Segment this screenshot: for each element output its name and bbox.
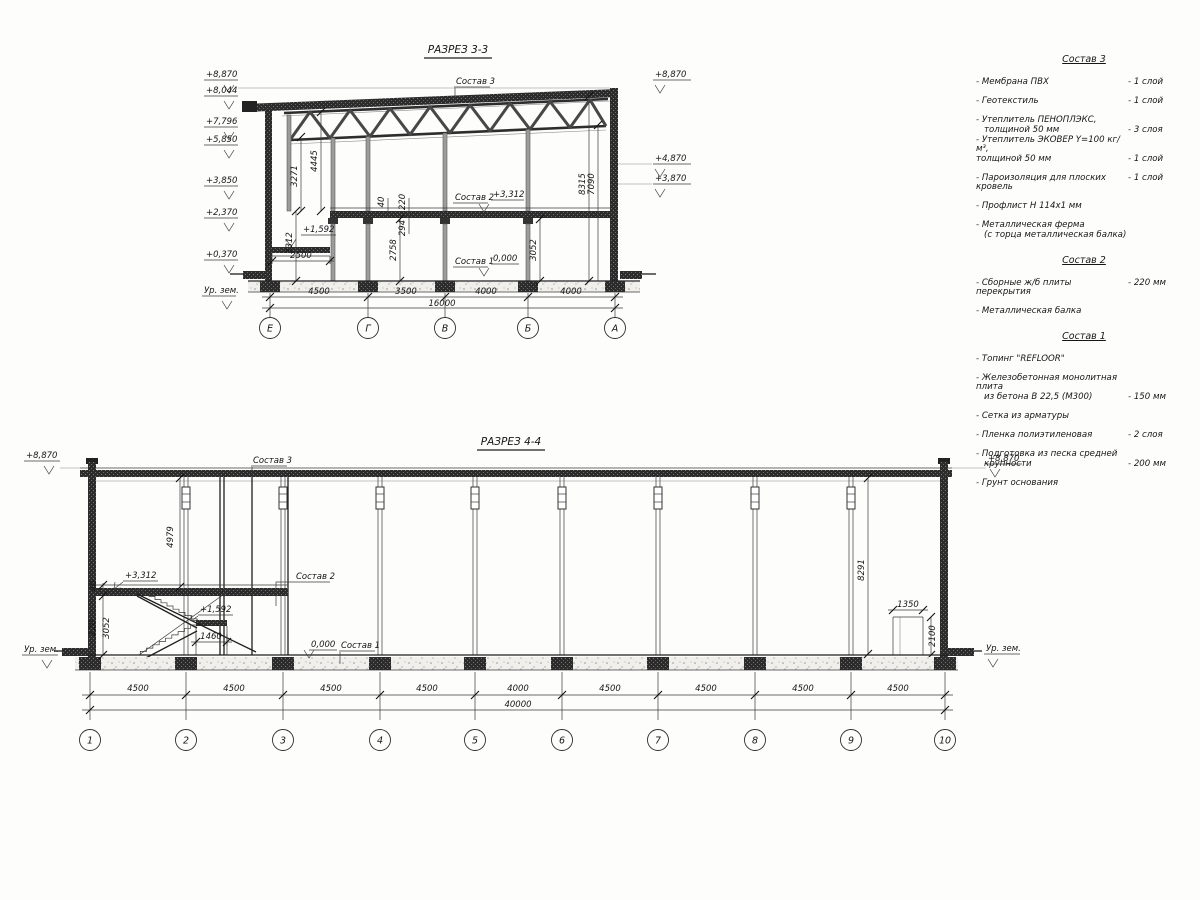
svg-text:+0,370: +0,370 bbox=[206, 250, 237, 260]
svg-text:2100: 2100 bbox=[928, 625, 938, 647]
svg-text:220: 220 bbox=[88, 620, 98, 636]
callout-sostav1-33: Состав 1 0,000 bbox=[453, 254, 519, 276]
svg-text:40000: 40000 bbox=[504, 700, 531, 710]
svg-text:+3,312: +3,312 bbox=[493, 190, 524, 200]
svg-text:2500: 2500 bbox=[290, 251, 312, 261]
svg-text:Б: Б bbox=[525, 324, 532, 335]
legend-row: - Геотекстиль- 1 слой bbox=[976, 97, 1192, 106]
axis-bubbles-33: Е Г В Б А bbox=[260, 318, 626, 339]
svg-text:16000: 16000 bbox=[428, 299, 455, 309]
callout-sostav2-33: Состав 2 +3,312 bbox=[453, 190, 524, 212]
columns-44 bbox=[182, 477, 855, 655]
legend-title-sostav1: Состав 1 bbox=[976, 331, 1192, 342]
legend-row: - Металлическая ферма bbox=[976, 221, 1192, 230]
svg-text:4500: 4500 bbox=[792, 684, 814, 694]
svg-text:4445: 4445 bbox=[310, 150, 320, 172]
legend-title-sostav2: Состав 2 bbox=[976, 255, 1192, 266]
svg-text:40: 40 bbox=[89, 581, 99, 592]
stair-walls-44 bbox=[220, 477, 288, 655]
svg-text:4000: 4000 bbox=[507, 684, 529, 694]
svg-text:4500: 4500 bbox=[308, 287, 330, 297]
svg-text:Г: Г bbox=[365, 324, 371, 335]
elevation-marks-left-33: +8,870 +8,044 +7,796 +5,850 +3,850 +2,37… bbox=[202, 70, 239, 309]
svg-text:4: 4 bbox=[377, 736, 383, 747]
axis-bubbles-44: 1 2 3 4 5 6 7 8 9 10 bbox=[80, 730, 956, 751]
svg-text:7090: 7090 bbox=[587, 173, 597, 195]
svg-text:4500: 4500 bbox=[223, 684, 245, 694]
elevation-marks-right-33: +8,870 +4,870 +3,870 bbox=[618, 70, 691, 197]
legend-row: - Топинг "REFLOOR" bbox=[976, 355, 1192, 364]
svg-text:4000: 4000 bbox=[560, 287, 582, 297]
legend-title-sostav3: Состав 3 bbox=[976, 54, 1192, 65]
column bbox=[443, 133, 447, 211]
svg-text:+2,370: +2,370 bbox=[206, 208, 237, 218]
svg-text:3052: 3052 bbox=[102, 617, 112, 639]
legend-row: - Утеплитель ЭКОВЕР Y=100 кг/м³, bbox=[976, 136, 1192, 154]
svg-text:0,000: 0,000 bbox=[311, 640, 335, 650]
svg-text:9: 9 bbox=[848, 736, 854, 747]
legend-row: - Профлист Н 114х1 мм bbox=[976, 202, 1192, 211]
legend-row: - Подготовка из песка средней bbox=[976, 450, 1192, 459]
svg-text:3: 3 bbox=[280, 736, 286, 747]
svg-text:+8,870: +8,870 bbox=[206, 70, 237, 80]
svg-text:4500: 4500 bbox=[599, 684, 621, 694]
svg-text:+1,592: +1,592 bbox=[303, 225, 334, 235]
svg-text:10: 10 bbox=[939, 736, 951, 747]
svg-text:220: 220 bbox=[398, 194, 408, 210]
column bbox=[366, 137, 370, 211]
svg-text:0,000: 0,000 bbox=[493, 254, 517, 264]
materials-legend: Состав 3 - Мембрана ПВХ- 1 слой - Геотек… bbox=[976, 54, 1192, 498]
legend-row: толщиной 50 мм- 3 слоя bbox=[976, 126, 1192, 135]
svg-text:Состав 3: Состав 3 bbox=[253, 456, 292, 466]
svg-text:+3,850: +3,850 bbox=[206, 176, 237, 186]
legend-row: - Мембрана ПВХ- 1 слой bbox=[976, 78, 1192, 87]
section-4-4: РАЗРЕЗ 4-4 bbox=[22, 436, 1022, 751]
svg-text:3500: 3500 bbox=[395, 287, 417, 297]
svg-text:Состав 1: Состав 1 bbox=[341, 641, 380, 651]
bottom-dims-44: 4500 4500 4500 4500 4000 4500 4500 4500 … bbox=[82, 672, 953, 720]
left-wall-33 bbox=[265, 106, 272, 282]
svg-text:Состав 3: Состав 3 bbox=[456, 77, 495, 87]
svg-text:7: 7 bbox=[655, 736, 661, 747]
svg-text:+3,870: +3,870 bbox=[655, 174, 686, 184]
svg-text:4500: 4500 bbox=[127, 684, 149, 694]
svg-text:8: 8 bbox=[752, 736, 758, 747]
svg-text:4000: 4000 bbox=[475, 287, 497, 297]
legend-row: - Утеплитель ПЕНОПЛЭКС, bbox=[976, 116, 1192, 125]
legend-row: толщиной 50 мм- 1 слой bbox=[976, 155, 1192, 164]
svg-text:6: 6 bbox=[559, 736, 565, 747]
section33-title: РАЗРЕЗ 3-3 bbox=[428, 44, 488, 56]
roof-slab-44 bbox=[80, 470, 952, 477]
floor-slab-33 bbox=[330, 211, 610, 218]
column bbox=[526, 130, 530, 212]
svg-text:8291: 8291 bbox=[857, 559, 867, 581]
right-wall-33 bbox=[610, 88, 618, 282]
svg-text:+5,850: +5,850 bbox=[206, 135, 237, 145]
legend-row: крупности- 200 мм bbox=[976, 460, 1192, 469]
mezzanine-slab-44 bbox=[96, 588, 288, 596]
svg-text:4500: 4500 bbox=[320, 684, 342, 694]
svg-text:5: 5 bbox=[472, 736, 478, 747]
svg-text:3271: 3271 bbox=[290, 165, 300, 187]
svg-text:+8,870: +8,870 bbox=[655, 70, 686, 80]
svg-text:+7,796: +7,796 bbox=[206, 117, 238, 127]
drawing-sheet: РАЗРЕЗ 3-3 bbox=[0, 0, 1200, 900]
callout-3312-44: +3,312 bbox=[114, 571, 158, 589]
door-opening-44: 1350 2100 bbox=[888, 600, 938, 659]
svg-text:Состав 2: Состав 2 bbox=[455, 193, 494, 203]
legend-row: из бетона В 22,5 (М300)- 150 мм bbox=[976, 393, 1192, 402]
svg-text:Ур. зем.: Ур. зем. bbox=[204, 286, 239, 296]
svg-text:Ур. зем.: Ур. зем. bbox=[986, 644, 1021, 654]
svg-text:Ур. зем.: Ур. зем. bbox=[24, 645, 59, 655]
legend-row: - Пленка полиэтиленовая- 2 слоя bbox=[976, 431, 1192, 440]
right-wall-44 bbox=[940, 462, 948, 668]
svg-text:294: 294 bbox=[398, 220, 408, 236]
svg-text:1350: 1350 bbox=[897, 600, 919, 610]
legend-row: - Грунт основания bbox=[976, 479, 1192, 488]
svg-text:Состав 2: Состав 2 bbox=[296, 572, 335, 582]
legend-row: (с торца металлическая балка) bbox=[976, 231, 1192, 240]
svg-text:+4,870: +4,870 bbox=[655, 154, 686, 164]
svg-text:1: 1 bbox=[87, 736, 93, 747]
legend-row: - Металлическая балка bbox=[976, 307, 1192, 316]
section44-title: РАЗРЕЗ 4-4 bbox=[481, 436, 541, 448]
legend-row: - Сетка из арматуры bbox=[976, 412, 1192, 421]
legend-row: - Сборные ж/б плиты перекрытия- 220 мм bbox=[976, 279, 1192, 297]
lower-columns bbox=[328, 218, 533, 281]
svg-text:3052: 3052 bbox=[529, 239, 539, 261]
svg-text:4979: 4979 bbox=[166, 526, 176, 548]
svg-text:+8,044: +8,044 bbox=[206, 86, 237, 96]
legend-row: - Железобетонная монолитная плита bbox=[976, 374, 1192, 392]
svg-text:2758: 2758 bbox=[389, 239, 399, 261]
section-3-3: РАЗРЕЗ 3-3 bbox=[202, 44, 691, 339]
svg-text:А: А bbox=[611, 324, 619, 335]
svg-text:4500: 4500 bbox=[887, 684, 909, 694]
column bbox=[331, 138, 335, 211]
legend-row: - Пароизоляция для плоских кровель- 1 сл… bbox=[976, 174, 1192, 192]
svg-text:4500: 4500 bbox=[695, 684, 717, 694]
svg-text:40: 40 bbox=[377, 197, 387, 208]
svg-text:2: 2 bbox=[183, 736, 189, 747]
floor-bed-44 bbox=[75, 657, 958, 670]
svg-text:+1,592: +1,592 bbox=[200, 605, 231, 615]
svg-text:Состав 1: Состав 1 bbox=[455, 257, 494, 267]
svg-text:+3,312: +3,312 bbox=[125, 571, 156, 581]
svg-text:4500: 4500 bbox=[416, 684, 438, 694]
svg-text:+8,870: +8,870 bbox=[26, 451, 57, 461]
svg-text:Е: Е bbox=[267, 324, 273, 335]
staircase-44 bbox=[137, 590, 256, 660]
svg-text:1460: 1460 bbox=[200, 632, 222, 642]
svg-text:В: В bbox=[442, 324, 449, 335]
